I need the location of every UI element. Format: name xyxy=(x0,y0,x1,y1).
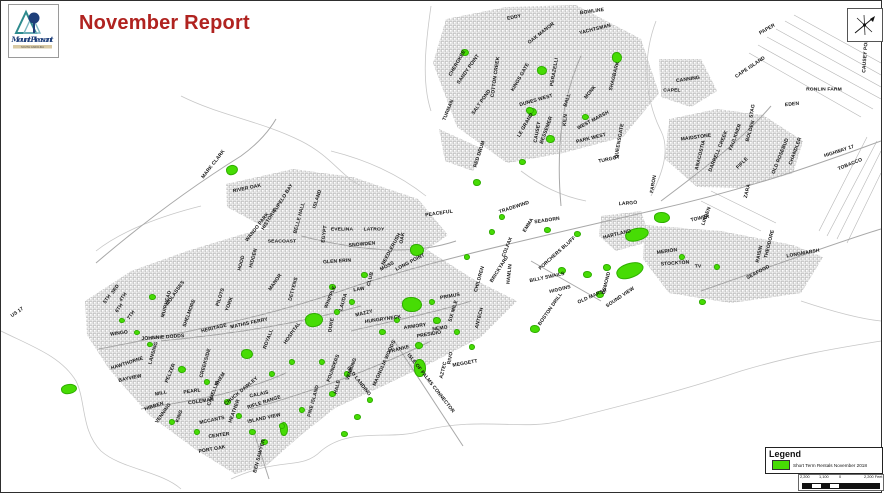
map-street-label: LONG POINT xyxy=(395,252,426,272)
map-street-label: MEGGETT xyxy=(452,358,478,368)
map-street-label: CLUB xyxy=(366,271,375,286)
map-street-label: HAWTHORNE xyxy=(110,355,144,371)
scale-bar-label: 2,200 Feet xyxy=(864,475,882,479)
map-street-label: WINGO xyxy=(110,329,129,337)
map-street-label: WEST MARSH xyxy=(576,109,610,130)
legend-item-label: Short Term Rentals November 2018 xyxy=(793,462,867,467)
map-street-label: FIFLE xyxy=(735,156,749,170)
map-street-label: MAGNOLIA WOODS xyxy=(371,339,396,386)
map-street-label: GLEN ERIN xyxy=(323,257,351,265)
map-street-label: PELZER xyxy=(164,363,177,384)
svg-text:Mount Pleasant: Mount Pleasant xyxy=(11,35,55,44)
scale-bar-label: 0 xyxy=(839,475,841,479)
map-street-label: CAMELLIA xyxy=(206,380,220,407)
map-street-label: 3RD xyxy=(110,283,120,295)
map-street-label: DETYENS xyxy=(287,277,299,302)
map-street-label: OSMOND xyxy=(601,271,612,295)
map-street-label: ISLAND xyxy=(311,189,322,209)
map-street-label: 4TH xyxy=(118,291,128,302)
map-street-label: BALL xyxy=(562,93,572,108)
map-street-label: TRADEWIND xyxy=(498,199,530,214)
map-street-label: BOSTON DRILL xyxy=(537,292,564,327)
north-arrow-box xyxy=(847,8,883,42)
map-street-label: THEODORE xyxy=(763,229,775,259)
map-street-label: OAK xyxy=(398,232,405,244)
page-title: November Report xyxy=(79,12,250,35)
map-street-label: HALE xyxy=(333,380,342,395)
map-street-label: STAG xyxy=(748,104,756,119)
map-street-label: SEABORN xyxy=(534,215,560,224)
map-street-label: FARON xyxy=(649,175,658,194)
map-street-label: HIDDEN xyxy=(248,248,259,269)
map-street-label: RONLIN FARM xyxy=(806,86,842,92)
map-street-label: TURMAN xyxy=(441,99,455,122)
scale-bar-segments xyxy=(802,483,880,489)
map-street-label: EVELINA xyxy=(331,226,353,232)
map-street-label: JOHNNIE DODDS xyxy=(141,333,184,342)
map-street-label: LATROY xyxy=(364,226,385,232)
svg-text:SOUTH CAROLINA: SOUTH CAROLINA xyxy=(21,45,44,49)
map-street-label: KILN xyxy=(562,114,569,127)
town-logo: Mount Pleasant SOUTH CAROLINA xyxy=(8,4,59,58)
map-street-label: TOBACCO xyxy=(837,157,863,172)
map-street-label: US 17 xyxy=(9,306,24,319)
map-street-label: PARK WEST xyxy=(576,132,607,145)
map-street-label: PEARL xyxy=(183,387,201,395)
report-page: BOWLINEEDDYOAK MANORYACHTSMANCHEROKEESAN… xyxy=(0,0,886,500)
map-street-label: RIVER OAK xyxy=(232,182,261,193)
map-street-label: SNOWDEN xyxy=(348,240,375,248)
legend-item: Short Term Rentals November 2018 xyxy=(772,460,882,470)
map-street-label: CAPE ISLAND xyxy=(734,55,766,79)
map-street-label: HOOD xyxy=(236,255,245,271)
map-street-label: BESSEMER xyxy=(538,116,553,145)
map-street-label: CENTER xyxy=(208,431,230,439)
scale-bar-label: 1,100 xyxy=(819,475,829,479)
map-street-label: HOSPITAL xyxy=(282,321,301,345)
map-street-label: SEACOAST xyxy=(268,238,297,244)
map-street-label: ZARA xyxy=(743,183,752,198)
map-street-label: 5TH xyxy=(102,293,112,304)
map-street-label: BOWLINE xyxy=(580,7,605,16)
north-arrow-icon xyxy=(851,12,879,38)
map-street-label: COLFAX xyxy=(501,236,514,257)
map-frame: BOWLINEEDDYOAK MANORYACHTSMANCHEROKEESAN… xyxy=(0,0,882,493)
map-street-label: SOUND VIEW xyxy=(605,285,636,308)
map-street-label: KINGS GATE xyxy=(510,62,531,92)
legend-swatch-green xyxy=(772,460,790,470)
scale-bar-label: 2,200 xyxy=(800,475,810,479)
map-street-label: PORCHERS BLUFF xyxy=(537,235,576,271)
map-street-label: SHAGBARK xyxy=(608,61,621,91)
map-street-label: ROYALL xyxy=(262,328,274,349)
map-street-label: EMMA xyxy=(521,217,534,233)
map-street-label: LAW xyxy=(353,285,365,292)
town-logo-emblem-icon: Mount Pleasant SOUTH CAROLINA xyxy=(9,5,56,55)
map-street-label: LONGMARSH xyxy=(786,247,820,258)
map-street-label: TV xyxy=(695,263,702,269)
map-street-label: 7TH xyxy=(126,309,136,320)
map-street-label: EDEN xyxy=(785,100,800,107)
street-label-layer: BOWLINEEDDYOAK MANORYACHTSMANCHEROKEESAN… xyxy=(1,1,881,492)
map-street-label: KING xyxy=(174,409,184,423)
map-street-label: DUNES WEST xyxy=(519,93,554,108)
map-street-label: OLD ROSEBUD xyxy=(770,137,789,174)
map-street-label: BAYVIEW xyxy=(118,373,142,383)
map-street-label: BILLY SWAILS xyxy=(529,271,565,284)
map-street-label: MAIDSTONE xyxy=(680,132,711,142)
map-street-label: SHELMORE xyxy=(181,298,196,327)
map-street-label: SIX MILE xyxy=(447,300,458,323)
map-street-label: HAMLIN xyxy=(505,264,513,285)
map-street-label: MANOR xyxy=(267,272,283,291)
map-street-label: ISLAND VIEW xyxy=(247,412,281,425)
map-street-label: MAZZY xyxy=(355,308,374,318)
map-street-label: HERITAGE xyxy=(201,322,228,334)
map-street-label: SEAFOOD xyxy=(745,264,770,281)
legend-title: Legend xyxy=(769,449,882,459)
map-street-label: PORT OAK xyxy=(198,444,226,454)
map-street-label: MCCANTS xyxy=(199,415,225,426)
map-street-label: FOUNDERS xyxy=(325,354,340,383)
map-street-label: PILOTS xyxy=(214,287,225,306)
map-street-label: CREEKSIDE xyxy=(198,348,212,378)
map-street-label: ARMORY xyxy=(403,322,426,331)
map-street-label: EGYPT xyxy=(320,225,328,243)
map-street-label: FAULKNER xyxy=(728,123,743,151)
map-street-label: 6TH xyxy=(114,302,124,313)
map-street-label: MILL xyxy=(155,389,168,397)
scale-bar-labels: 2,2001,10002,200 Feet xyxy=(799,475,883,481)
map-street-label: LAUDA xyxy=(338,293,348,312)
map-street-label: PEACEFUL xyxy=(425,208,453,217)
map-street-label: LANSING xyxy=(147,341,159,365)
map-street-label: EDDY xyxy=(506,13,521,21)
map-street-label: MATHIS FERRY xyxy=(230,316,268,329)
map-street-label: MONK xyxy=(583,84,597,100)
map-street-label: BELLE HALL xyxy=(292,202,306,234)
map-street-label: LARGO xyxy=(619,200,638,207)
map-street-label: WHIPPLE xyxy=(323,285,337,309)
map-street-label: CANNING xyxy=(676,75,701,84)
map-street-label: MARK CLARK xyxy=(200,149,226,180)
map-street-label: HUNGRYNECK xyxy=(364,314,401,325)
map-street-label: TURGOT xyxy=(598,154,620,164)
map-street-label: PERAZELLI xyxy=(549,57,559,86)
map-street-label: RED DRUM xyxy=(472,140,486,168)
map-street-label: CHILDREN xyxy=(473,265,486,292)
map-street-label: OAK MANOR xyxy=(527,21,556,45)
map-street-label: CAPEL xyxy=(663,87,680,93)
map-street-label: MERION xyxy=(656,247,677,255)
map-street-label: NEMO xyxy=(432,324,448,332)
map-street-label: STOCKTON xyxy=(661,259,690,267)
map-street-label: DUKE xyxy=(327,317,335,332)
map-street-label: CHANDLER xyxy=(787,137,802,166)
map-street-label: BEN SAWYER xyxy=(252,439,266,474)
map-street-label: YACHTSMAN xyxy=(579,22,612,35)
map-street-label: PAPER xyxy=(758,22,776,36)
map-street-label: PINE ISLAND xyxy=(306,384,320,417)
map-street-label: OLD LANDING xyxy=(346,365,372,397)
scale-bar: 2,2001,10002,200 Feet xyxy=(798,474,884,491)
map-street-label: SALT POND xyxy=(470,88,491,115)
map-street-label: LE GRAND xyxy=(516,112,534,138)
map-street-label: PRIMUS xyxy=(440,292,461,301)
legend: Legend Short Term Rentals November 2018 xyxy=(765,447,883,474)
map-street-label: HIGHWAY 17 xyxy=(823,144,854,159)
map-street-label: HARTLAND xyxy=(602,228,631,240)
map-street-label: YORK xyxy=(224,296,234,312)
map-street-label: ANTECH xyxy=(474,307,485,329)
map-street-label: ANACOSTIA xyxy=(694,139,707,170)
map-street-label: RAISIN xyxy=(754,245,763,263)
map-street-label: BOLDEN xyxy=(744,120,755,142)
